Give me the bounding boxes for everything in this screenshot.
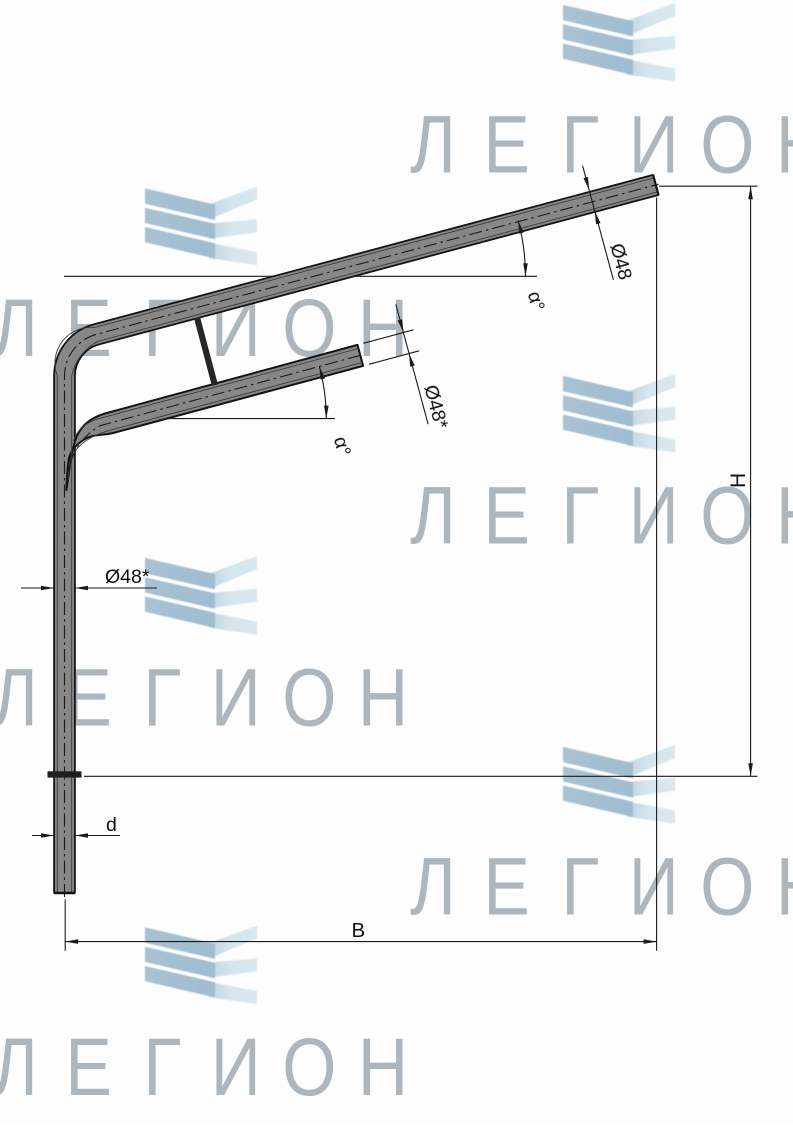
- svg-text:Н: Н: [776, 470, 793, 562]
- svg-text:О: О: [700, 99, 754, 191]
- svg-text:Н: Н: [358, 652, 408, 744]
- svg-text:Н: Н: [776, 99, 793, 191]
- svg-text:H: H: [727, 473, 750, 488]
- svg-text:В: В: [352, 919, 366, 942]
- svg-text:Е: Е: [483, 841, 529, 933]
- svg-text:И: И: [211, 652, 261, 744]
- svg-text:Е: Е: [483, 99, 529, 191]
- svg-text:Г: Г: [561, 841, 599, 933]
- svg-text:Л: Л: [0, 1022, 38, 1114]
- svg-text:И: И: [629, 841, 679, 933]
- svg-text:Г: Г: [561, 470, 599, 562]
- svg-text:И: И: [211, 1022, 261, 1114]
- svg-text:Г: Г: [561, 99, 599, 191]
- svg-text:Е: Е: [65, 1022, 111, 1114]
- svg-text:О: О: [282, 652, 336, 744]
- svg-text:Л: Л: [410, 470, 456, 562]
- svg-text:Ø48*: Ø48*: [105, 566, 150, 588]
- svg-text:Л: Л: [0, 283, 38, 375]
- svg-text:Н: Н: [358, 1022, 408, 1114]
- svg-text:И: И: [629, 470, 679, 562]
- svg-text:Н: Н: [776, 841, 793, 933]
- svg-text:Г: Г: [143, 1022, 181, 1114]
- svg-text:d: d: [106, 814, 117, 836]
- svg-text:Л: Л: [410, 841, 456, 933]
- svg-text:О: О: [700, 841, 754, 933]
- svg-text:О: О: [282, 1022, 336, 1114]
- svg-text:Е: Е: [483, 470, 529, 562]
- svg-text:Л: Л: [410, 99, 456, 191]
- svg-text:Л: Л: [0, 652, 38, 744]
- svg-text:Г: Г: [143, 652, 181, 744]
